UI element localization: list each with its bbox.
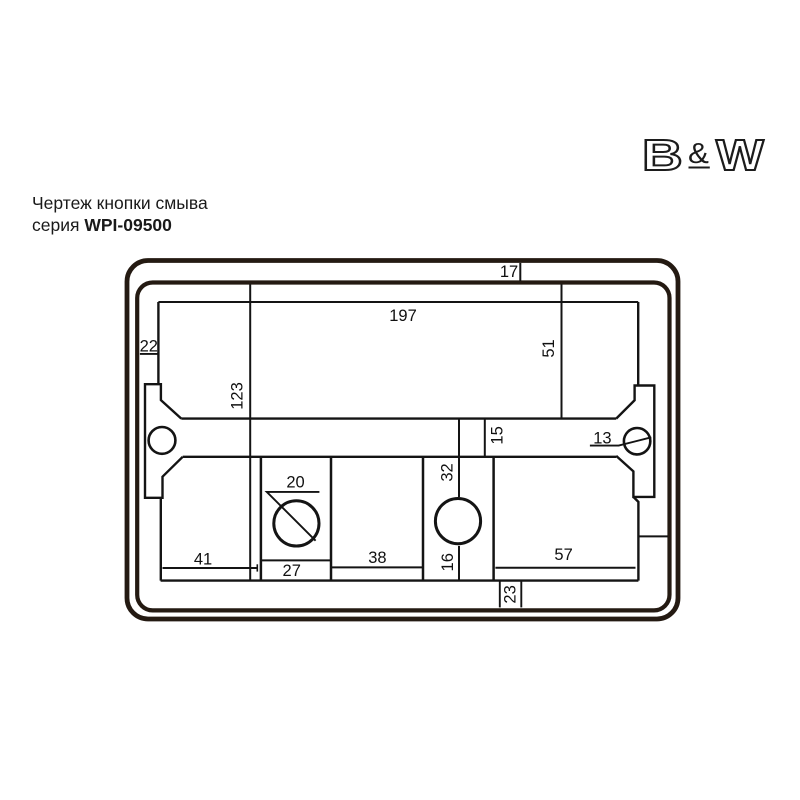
svg-text:13: 13: [593, 430, 611, 448]
svg-text:серия WPI-09500: серия WPI-09500: [32, 215, 172, 235]
svg-text:Чертеж кнопки смыва: Чертеж кнопки смыва: [32, 193, 208, 213]
svg-text:15: 15: [489, 426, 507, 444]
svg-text:51: 51: [540, 339, 558, 357]
svg-text:57: 57: [554, 546, 572, 564]
svg-text:16: 16: [439, 553, 457, 571]
svg-text:41: 41: [194, 550, 212, 568]
svg-text:B: B: [642, 130, 683, 180]
svg-text:W: W: [716, 131, 764, 180]
svg-text:23: 23: [501, 585, 519, 603]
svg-text:197: 197: [389, 307, 417, 325]
svg-text:123: 123: [228, 382, 246, 410]
svg-text:32: 32: [439, 463, 457, 481]
svg-text:38: 38: [368, 549, 386, 567]
svg-text:20: 20: [286, 474, 304, 492]
svg-text:&: &: [688, 138, 709, 170]
svg-text:22: 22: [140, 337, 158, 355]
svg-text:27: 27: [283, 562, 301, 580]
svg-text:17: 17: [500, 263, 518, 281]
